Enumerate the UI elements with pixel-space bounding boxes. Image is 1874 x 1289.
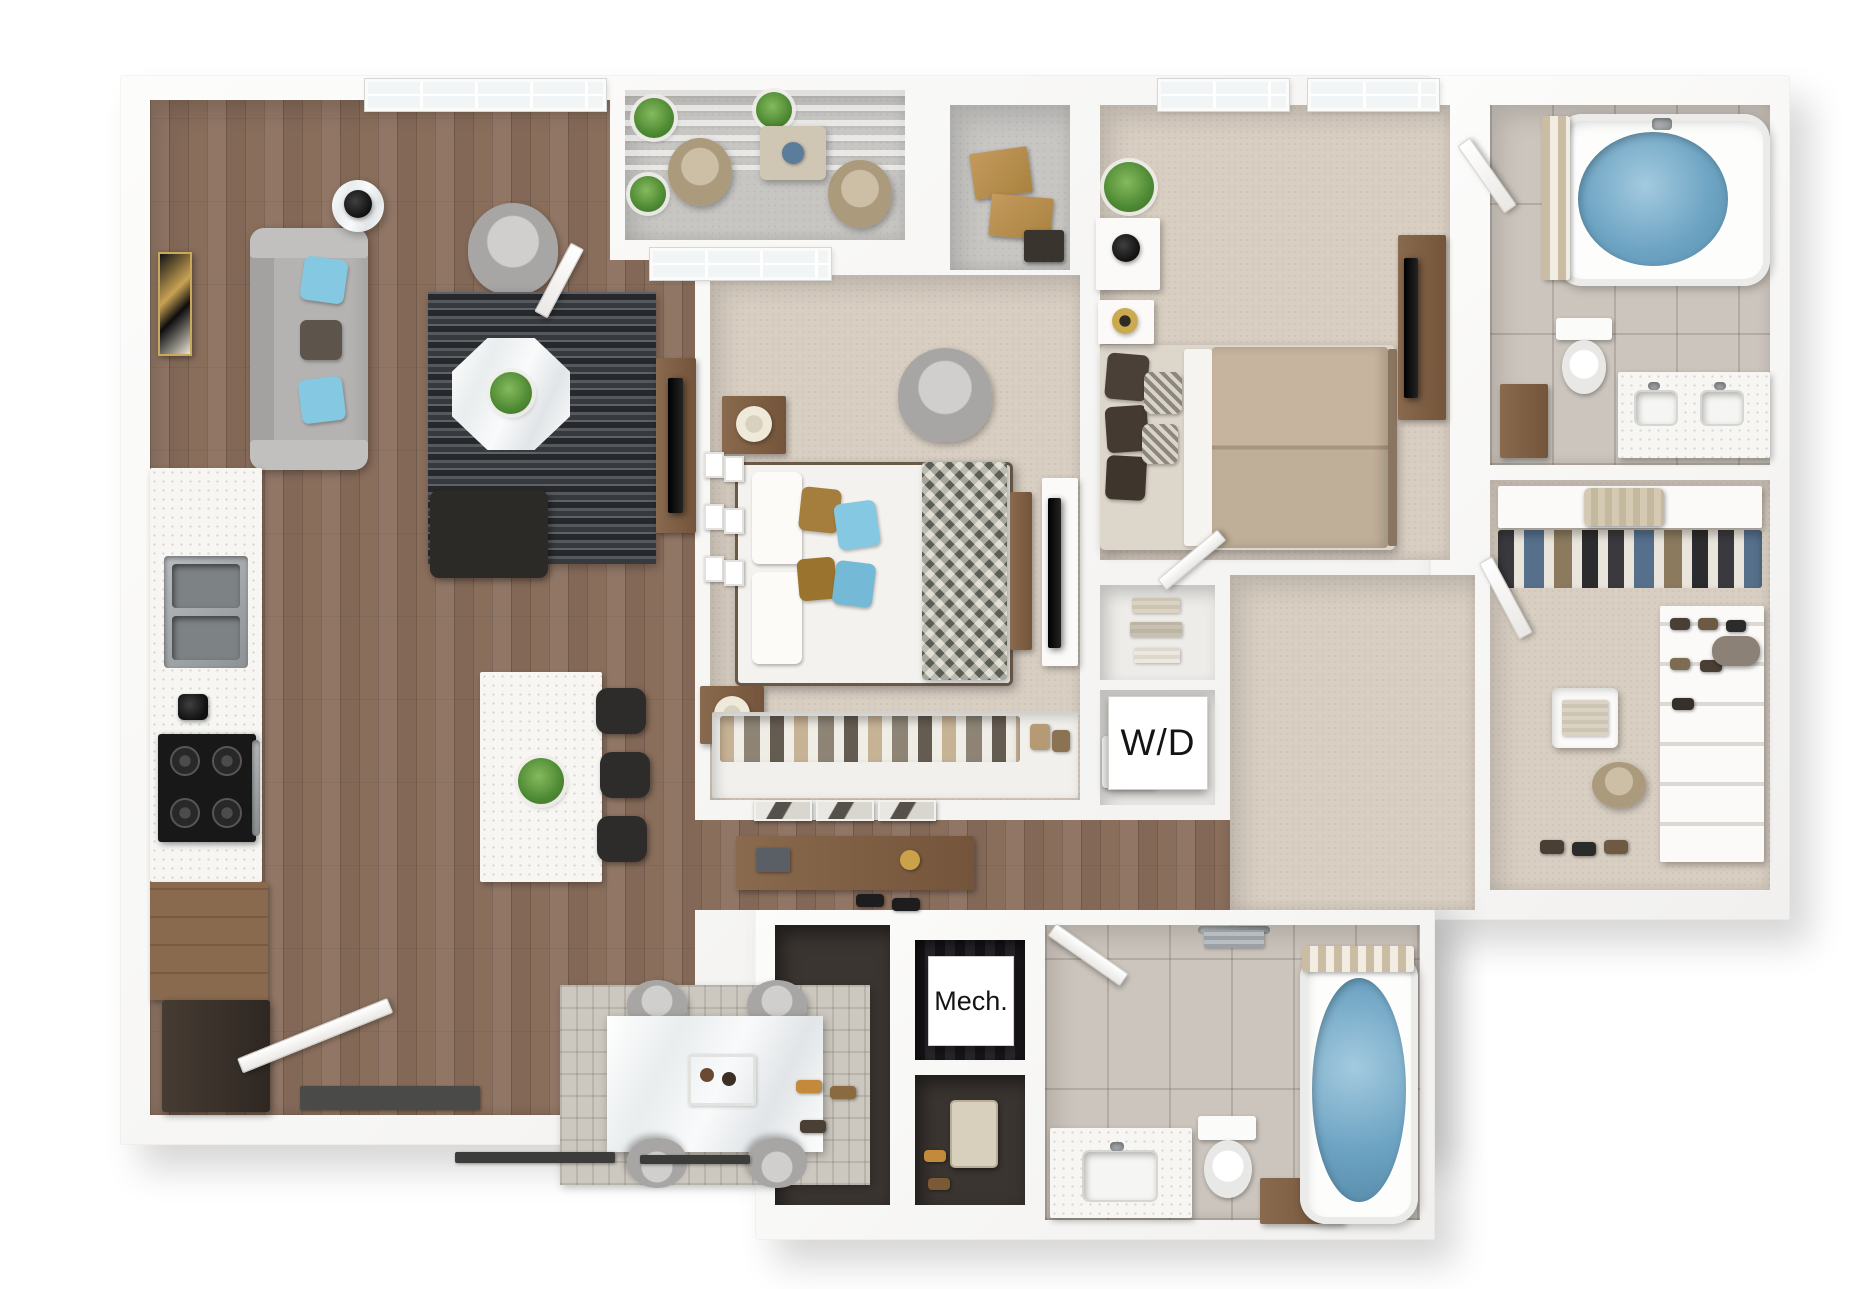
- gallery-frame-1: [704, 452, 724, 478]
- sofa-pillow-blue-1: [299, 255, 349, 305]
- cooktop: [158, 734, 256, 842]
- living-bench: [430, 490, 548, 578]
- walkin-stool: [1592, 762, 1646, 808]
- walkin-hamper-towel: [1562, 700, 1608, 736]
- under-mech-shoe-2: [928, 1178, 950, 1190]
- bedroom1-tv: [1048, 498, 1061, 648]
- hall-art-1: [754, 800, 812, 821]
- under-mech-cart: [950, 1100, 998, 1168]
- entry-doormat: [300, 1086, 480, 1110]
- sofa-backrest: [250, 228, 274, 470]
- storage-desk: [1024, 230, 1064, 262]
- oven-handle: [252, 740, 260, 836]
- bedroom1-closet-clothes: [720, 716, 1020, 762]
- bathroom2-cabinet: [1500, 384, 1548, 458]
- bed2-duvet: [1212, 347, 1388, 548]
- mechanical-label: Mech.: [928, 956, 1014, 1046]
- burner-3: [170, 798, 200, 828]
- mechanical-label-text: Mech.: [934, 986, 1008, 1017]
- table-lamp: [344, 190, 372, 218]
- closet-handbag-1: [1030, 724, 1050, 750]
- gallery-frame-6: [724, 560, 744, 586]
- balcony-plant-1: [634, 98, 674, 138]
- bed1-pillow-white-2: [752, 572, 802, 664]
- gallery-frame-4: [724, 508, 744, 534]
- coat-closet-organizer: [788, 940, 876, 1050]
- closet-handbag-2: [1052, 730, 1070, 752]
- sofa-pillow-dark: [300, 320, 342, 360]
- bedroom1-armchair: [898, 348, 992, 442]
- walkin-shoe-6: [1672, 698, 1694, 710]
- washer-dryer-label-text: W/D: [1121, 722, 1196, 764]
- bathroom2-tub-faucet: [1652, 118, 1672, 130]
- bedroom2-window-2: [1308, 79, 1439, 111]
- sink-basin-top: [172, 564, 240, 608]
- walkin-suitcase: [1584, 488, 1664, 526]
- dining-cup-1: [700, 1068, 714, 1082]
- linen-towel-1: [1132, 598, 1180, 613]
- bed1-pillow-blue-1: [833, 499, 881, 550]
- bathroom2-sink-1: [1634, 390, 1678, 426]
- bed2-pillow-pattern-1: [1144, 372, 1182, 414]
- bed2-pillow-dark-3: [1105, 455, 1147, 501]
- patio-chair-2: [828, 160, 892, 228]
- living-armchair: [468, 203, 558, 295]
- walkin-floor-shoe-2: [1572, 842, 1596, 856]
- coat-closet-shoe-3: [800, 1120, 826, 1133]
- bathroom1-toilet-bowl: [1204, 1140, 1252, 1198]
- bed2-sheet-fold: [1184, 349, 1212, 546]
- linen-towel-2: [1130, 622, 1182, 637]
- storage-box-1: [969, 146, 1033, 200]
- bathroom2-faucet-2: [1714, 382, 1726, 390]
- coat-closet-shoe-2: [830, 1086, 856, 1099]
- walkin-hanging-clothes: [1498, 530, 1762, 588]
- bathroom1-towel: [1204, 930, 1264, 948]
- walkin-shoe-3: [1726, 620, 1746, 632]
- bathroom2-faucet-1: [1648, 382, 1660, 390]
- walkin-floor-shoe-3: [1604, 840, 1628, 854]
- bathroom1-toilet-tank: [1198, 1116, 1256, 1140]
- bathroom1-faucet: [1110, 1142, 1124, 1151]
- linen-towel-3: [1134, 648, 1180, 663]
- washer-dryer-label: W/D: [1108, 696, 1208, 790]
- floor-plan: W/D Mech.: [0, 0, 1874, 1289]
- bedroom2-gold-lamp: [1112, 308, 1138, 334]
- kitchen-sink: [164, 556, 248, 668]
- bed2-footboard: [1388, 349, 1397, 546]
- dining-chair-4: [747, 1138, 807, 1188]
- hall-shoes-2: [892, 898, 920, 911]
- walkin-shoe-1: [1670, 618, 1690, 630]
- coffee-maker: [178, 694, 208, 720]
- wall-art: [158, 252, 192, 356]
- under-mech-shoe-1: [924, 1150, 946, 1162]
- walkin-floor-shoe-1: [1540, 840, 1564, 854]
- kitchen-lower-cabinets: [150, 882, 268, 1000]
- bathroom2-sink-2: [1700, 390, 1744, 426]
- hall-shoes-1: [856, 894, 884, 907]
- bedroom1-window: [650, 248, 831, 280]
- bed1-chevron-throw: [922, 462, 1007, 680]
- bed1-lamp-top: [736, 406, 772, 442]
- patio-chair-1: [668, 138, 732, 206]
- console-books: [756, 848, 790, 872]
- hall-art-3: [878, 800, 936, 821]
- bed1-foot-bench: [1010, 492, 1032, 650]
- sofa-armrest-bottom: [250, 440, 368, 470]
- gallery-frame-5: [704, 556, 724, 582]
- bathroom1-tub-water: [1312, 978, 1406, 1202]
- gallery-frame-3: [704, 504, 724, 530]
- gallery-frame-2: [724, 456, 744, 482]
- bedroom2-console-lamp: [1112, 234, 1140, 262]
- bathroom1-sink: [1082, 1150, 1158, 1202]
- bar-stool-3: [597, 816, 647, 862]
- coffee-table-plant: [490, 372, 532, 414]
- bar-stool-1: [596, 688, 646, 734]
- walkin-duffel: [1712, 636, 1760, 666]
- bed1-pillow-blue-2: [831, 560, 876, 609]
- walkin-basket: [1510, 490, 1566, 524]
- bedroom2-tv: [1404, 258, 1418, 398]
- outside-mat-1: [455, 1152, 615, 1163]
- bathroom2-shower-curtain: [1542, 116, 1570, 280]
- walkin-shoe-2: [1698, 618, 1718, 630]
- console-bowl: [900, 850, 920, 870]
- hall-art-2: [816, 800, 874, 821]
- bathroom1-shower-curtain: [1302, 946, 1414, 972]
- sofa-armrest-top: [250, 228, 368, 258]
- bedroom2-plant: [1104, 162, 1154, 212]
- island-plant: [518, 758, 564, 804]
- balcony-plant-2: [756, 92, 792, 128]
- bed1-pillow-white-1: [752, 472, 802, 564]
- bathroom2-tub-water: [1578, 132, 1728, 266]
- walkin-shoe-4: [1670, 658, 1690, 670]
- burner-1: [170, 746, 200, 776]
- burner-2: [212, 746, 242, 776]
- bathroom2-toilet-bowl: [1562, 340, 1606, 394]
- bathroom2-toilet-tank: [1556, 318, 1612, 340]
- outside-mat-2: [640, 1155, 750, 1164]
- living-tv: [668, 378, 683, 513]
- hallway-floor: [1230, 575, 1475, 910]
- bed2-pillow-pattern-2: [1142, 424, 1178, 464]
- coat-closet-shoe-1: [796, 1080, 822, 1093]
- patio-table-decor: [782, 142, 804, 164]
- bedroom2-window-1: [1158, 79, 1289, 111]
- living-room-window: [365, 79, 606, 111]
- burner-4: [212, 798, 242, 828]
- sofa-pillow-blue-2: [297, 375, 346, 424]
- sink-basin-bottom: [172, 616, 240, 660]
- bar-stool-2: [600, 752, 650, 798]
- dining-cup-2: [722, 1072, 736, 1086]
- balcony-plant-3: [630, 176, 666, 212]
